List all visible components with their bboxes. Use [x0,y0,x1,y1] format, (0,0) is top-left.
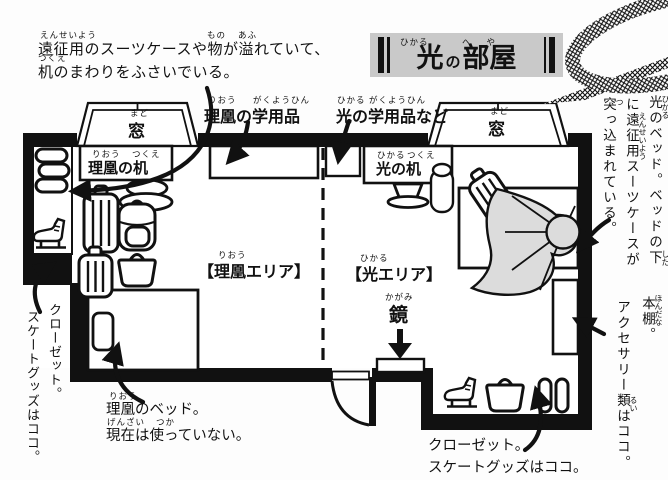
backpack-icon [119,201,155,250]
door [332,372,376,427]
furigana: がくようひん [253,94,310,106]
furigana: えんせいよう [637,112,648,160]
note-bookshelf-col2: アクセサリー類はココ。 [612,300,632,471]
blanket-bundle [547,216,580,249]
furigana: えんせいよう [40,29,97,41]
tote-bag-icon-br-closet [487,380,524,412]
furigana: つくえ [407,149,436,161]
furigana: まど [130,107,149,119]
furigana: まど [490,105,509,117]
furigana: りおう [109,390,138,402]
note-clutter-line1: 遠征用のスーツケースや物が溢れていて、 [38,38,330,59]
label-rio-area: 【理凰エリア】 [198,258,310,282]
furigana: りおう [208,94,237,106]
furigana: げんざい [107,416,145,428]
label-window-right: 窓 [488,115,505,140]
furigana: つくえ [132,148,161,160]
rolled-items-icons [36,149,69,192]
note-closet-left-col1: クローゼット。 [44,303,63,401]
banner-bar [387,37,390,73]
furigana: つか [156,416,175,428]
note-clutter-line2: 机のまわりをふさいでいる。 [38,61,239,82]
note-hikaru-bed-col3: 突っ込まれている。 [598,97,618,237]
furigana: ほんだな [653,294,664,326]
mirror [377,359,424,372]
furigana: あふ [238,29,257,41]
label-window-left: 窓 [128,117,145,142]
rio-supplies-shelf [210,146,318,178]
furigana: かがみ [385,291,414,303]
room-plan-page: 光 の 部屋 ひかる へや 遠征用のスーツケースや物が溢れていて、 机のまわりを… [0,0,668,480]
tote-bag-icon-rio [119,255,156,287]
furigana: ひかる [360,252,389,264]
label-hikaru-area: 【光エリア】 [346,261,442,285]
rio-bed-pillow [93,313,113,350]
furigana: がくようひん [369,94,426,106]
label-hikaru-supplies: 光の学用品など [336,103,448,127]
banner-bar [549,37,555,73]
banner-bar [544,37,547,73]
banner-bar [378,37,384,73]
label-rio-desk: 理凰の机 [88,157,148,178]
title-hikaru: 光 [416,45,443,72]
note-closet-left-col2: スケートグッズはココ。 [22,310,41,464]
title-heya: 部屋 [463,45,517,72]
furigana: つ [614,98,625,106]
furigana: りおう [92,148,121,160]
title-furigana-heya: へや [462,36,511,48]
note-closet-br-line1: クローゼット。 [428,434,529,455]
suitcase-icon-1 [84,186,118,252]
note-closet-br-line2: スケートグッズはココ。 [428,456,588,477]
furigana: ひかる [660,95,668,119]
furigana: つくえ [38,52,67,64]
title-no: の [443,55,462,72]
label-mirror: 鏡 [389,300,408,327]
hikaru-supplies-shelf [326,146,360,176]
hikaru-chair [431,164,453,212]
furigana: りおう [218,249,247,261]
furigana: もの [207,29,226,41]
label-hikaru-desk: 光の机 [376,158,421,179]
title-furigana-hikaru: ひかる [400,36,429,48]
furigana: るい [628,396,639,412]
furigana: ひかる [377,149,406,161]
bookshelf [553,280,578,354]
furigana: した [660,250,668,266]
suitcase-icon-2 [79,247,112,297]
room-title: 光 の 部屋 [416,45,516,77]
label-rio-supplies: 理凰の学用品 [204,103,300,127]
furigana: ひかる [337,94,366,106]
